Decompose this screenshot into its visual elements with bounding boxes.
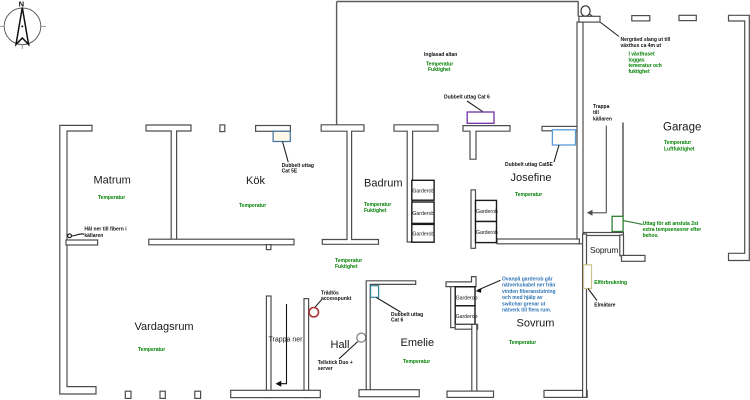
svg-text:Fuktighet: Fuktighet [335,264,358,270]
svg-text:Elmätare: Elmätare [594,303,615,309]
svg-text:Garderob: Garderob [456,314,478,320]
svg-text:Matrum: Matrum [94,175,131,187]
svg-text:Cat 6: Cat 6 [391,318,403,324]
svg-text:vinden fiberanslutning: vinden fiberanslutning [502,289,556,295]
svg-text:källaren: källaren [84,233,103,239]
svg-text:Garderob: Garderob [412,189,434,195]
svg-text:Temperatur: Temperatur [98,195,125,201]
svg-text:källaren: källaren [593,117,612,123]
svg-text:Ovanpå garderob går: Ovanpå garderob går [502,275,553,282]
svg-text:Soprum: Soprum [590,245,618,255]
svg-text:Cat 5E: Cat 5E [282,169,298,175]
svg-text:Temperatur: Temperatur [403,359,430,365]
svg-text:Garderob: Garderob [412,232,434,238]
svg-text:Vardagsrum: Vardagsrum [135,321,194,333]
svg-text:Temperatur: Temperatur [664,140,691,146]
svg-text:Dubbelt uttag Cat 6: Dubbelt uttag Cat 6 [444,95,490,101]
svg-text:Luftfuktighet: Luftfuktighet [664,147,695,153]
svg-text:fuktighet: fuktighet [629,69,650,75]
svg-text:Garderob: Garderob [412,211,434,217]
svg-text:Trappa ner: Trappa ner [269,337,304,344]
svg-text:server: server [318,366,333,372]
svg-text:nätverkskabel ner från: nätverkskabel ner från [502,282,555,289]
svg-text:Kök: Kök [246,175,265,187]
svg-text:behov.: behov. [643,233,659,239]
svg-text:Elförbrukning: Elförbrukning [594,280,627,286]
svg-text:Emelie: Emelie [401,337,435,349]
svg-text:Garderob: Garderob [476,230,498,236]
svg-text:Uttag för att ansluta 2st: Uttag för att ansluta 2st [643,221,699,227]
svg-text:Dubbelt uttag Cat5E: Dubbelt uttag Cat5E [505,162,553,168]
svg-text:Temperatur: Temperatur [138,347,165,353]
svg-text:Hall: Hall [331,339,350,351]
svg-text:N: N [19,0,24,8]
svg-text:Badrum: Badrum [364,178,403,190]
svg-text:Fuktighet: Fuktighet [428,67,451,73]
svg-text:till: till [593,110,599,116]
svg-text:Temperatur: Temperatur [515,192,542,198]
svg-text:och med hjälp av: och med hjälp av [502,295,543,301]
svg-text:nätverk till flera rum.: nätverk till flera rum. [502,308,552,314]
svg-text:Temperatur: Temperatur [239,203,266,209]
svg-text:Inglasad altan: Inglasad altan [424,52,457,58]
svg-text:switchar grenar ut: switchar grenar ut [502,301,546,307]
svg-text:accesspunkt: accesspunkt [321,296,352,302]
svg-text:Temperatur: Temperatur [509,340,536,346]
svg-text:Sovrum: Sovrum [517,317,555,329]
svg-text:Fuktighet: Fuktighet [364,208,387,214]
svg-text:växthus ca 4m ut: växthus ca 4m ut [621,43,662,49]
svg-text:Garderob: Garderob [456,296,478,302]
svg-text:Garage: Garage [663,122,701,134]
svg-text:Hål ner till fibern i: Hål ner till fibern i [84,226,127,233]
svg-text:Garderob: Garderob [476,209,498,215]
svg-text:Josefine: Josefine [511,172,552,184]
